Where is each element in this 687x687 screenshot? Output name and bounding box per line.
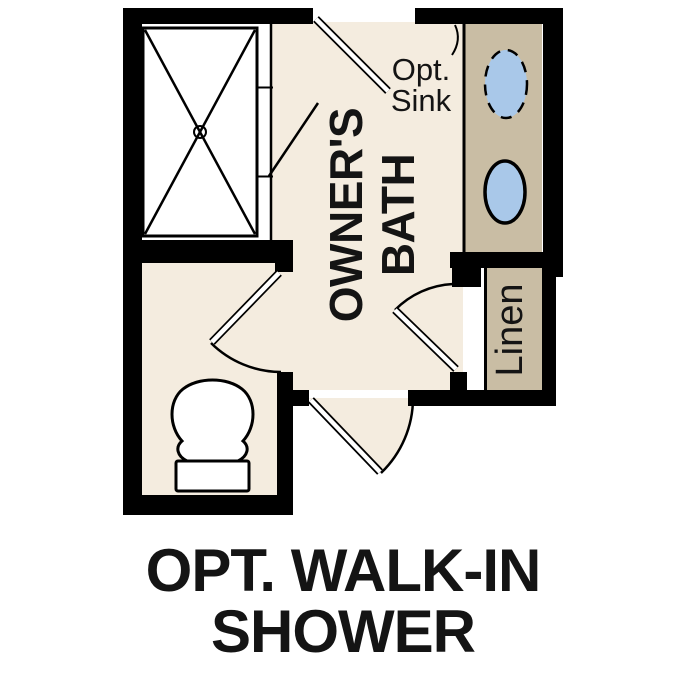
wall-linen-stub-bottom: [450, 372, 467, 392]
room-label-bath: BATH: [372, 154, 424, 276]
sink-icon: [485, 161, 525, 223]
wall-toilet-bottom: [123, 495, 293, 515]
room-label-owners: OWNER'S: [320, 108, 372, 322]
vanity: [464, 24, 542, 252]
toilet-icon: [172, 380, 253, 491]
opt-sink-label-line1: Opt.: [392, 52, 451, 87]
wall-vanity-linen-divider: [450, 252, 563, 268]
wall-linen-stub-top: [452, 268, 481, 287]
wall-bath-bottom: [408, 390, 556, 406]
caption-line2: SHOWER: [211, 598, 476, 665]
toilet-tank: [176, 461, 249, 491]
wall-right-lower: [542, 268, 556, 406]
opt-sink-label-line2: Sink: [391, 83, 452, 118]
wall-entry-stub-left: [290, 390, 309, 406]
floor-plan: Opt. Sink OWNER'S BATH Linen OPT. WALK-I…: [0, 0, 687, 687]
optional-sink-icon: [485, 50, 527, 118]
wall-right-upper: [543, 8, 563, 277]
wall-top-left: [123, 8, 313, 24]
linen-label: Linen: [489, 284, 531, 377]
floor-plan-drawing: Opt. Sink OWNER'S BATH Linen OPT. WALK-I…: [0, 0, 687, 687]
wall-top-right: [415, 8, 563, 24]
caption-line1: OPT. WALK-IN: [146, 537, 541, 604]
wall-shower-bottom: [123, 240, 293, 263]
toilet-bowl: [172, 380, 253, 461]
wall-toilet-door-stub-top: [275, 240, 293, 272]
